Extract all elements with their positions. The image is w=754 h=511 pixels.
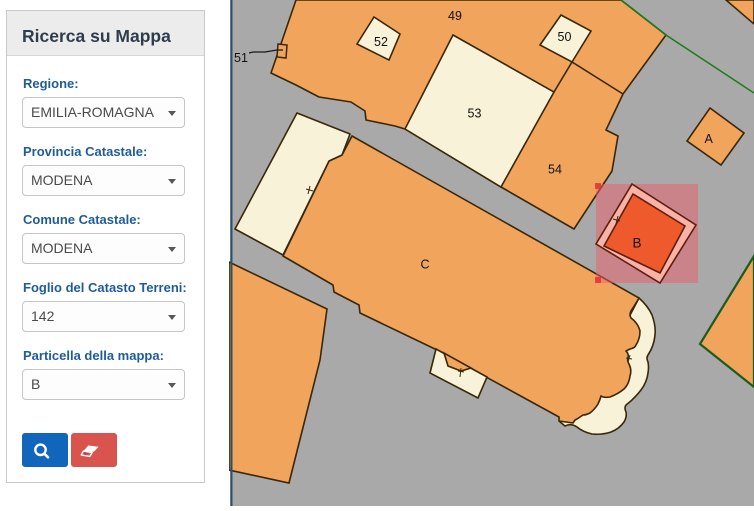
svg-text:A: A <box>705 132 714 146</box>
svg-text:51: 51 <box>234 51 248 65</box>
svg-text:53: 53 <box>468 107 482 121</box>
svg-text:54: 54 <box>548 163 562 177</box>
svg-text:B: B <box>633 235 642 250</box>
svg-text:50: 50 <box>558 30 572 44</box>
svg-text:52: 52 <box>374 35 388 49</box>
svg-text:49: 49 <box>448 9 462 23</box>
svg-text:C: C <box>421 257 430 271</box>
